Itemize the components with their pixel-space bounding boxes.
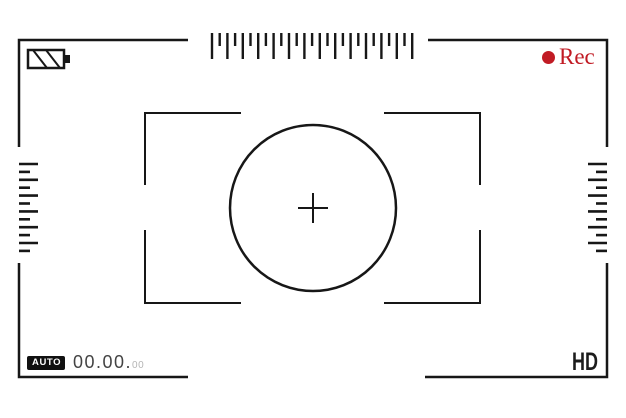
timecode: 00.00.00 [73, 352, 144, 373]
hd-quality-label: HD [572, 348, 598, 377]
rec-label: Rec [559, 46, 595, 68]
crosshair-icon [298, 193, 328, 223]
timecode-frames: 00 [132, 360, 144, 371]
rec-indicator: Rec [542, 46, 595, 68]
camera-viewfinder: Rec AUTO 00.00.00 HD [0, 0, 626, 418]
auto-mode-badge: AUTO [27, 356, 65, 370]
battery-icon [28, 50, 70, 68]
record-dot-icon [542, 51, 555, 64]
timecode-main: 00.00. [73, 352, 132, 372]
left-scale-ruler [19, 164, 38, 251]
top-exposure-ruler [212, 33, 412, 59]
right-scale-ruler [588, 164, 607, 251]
